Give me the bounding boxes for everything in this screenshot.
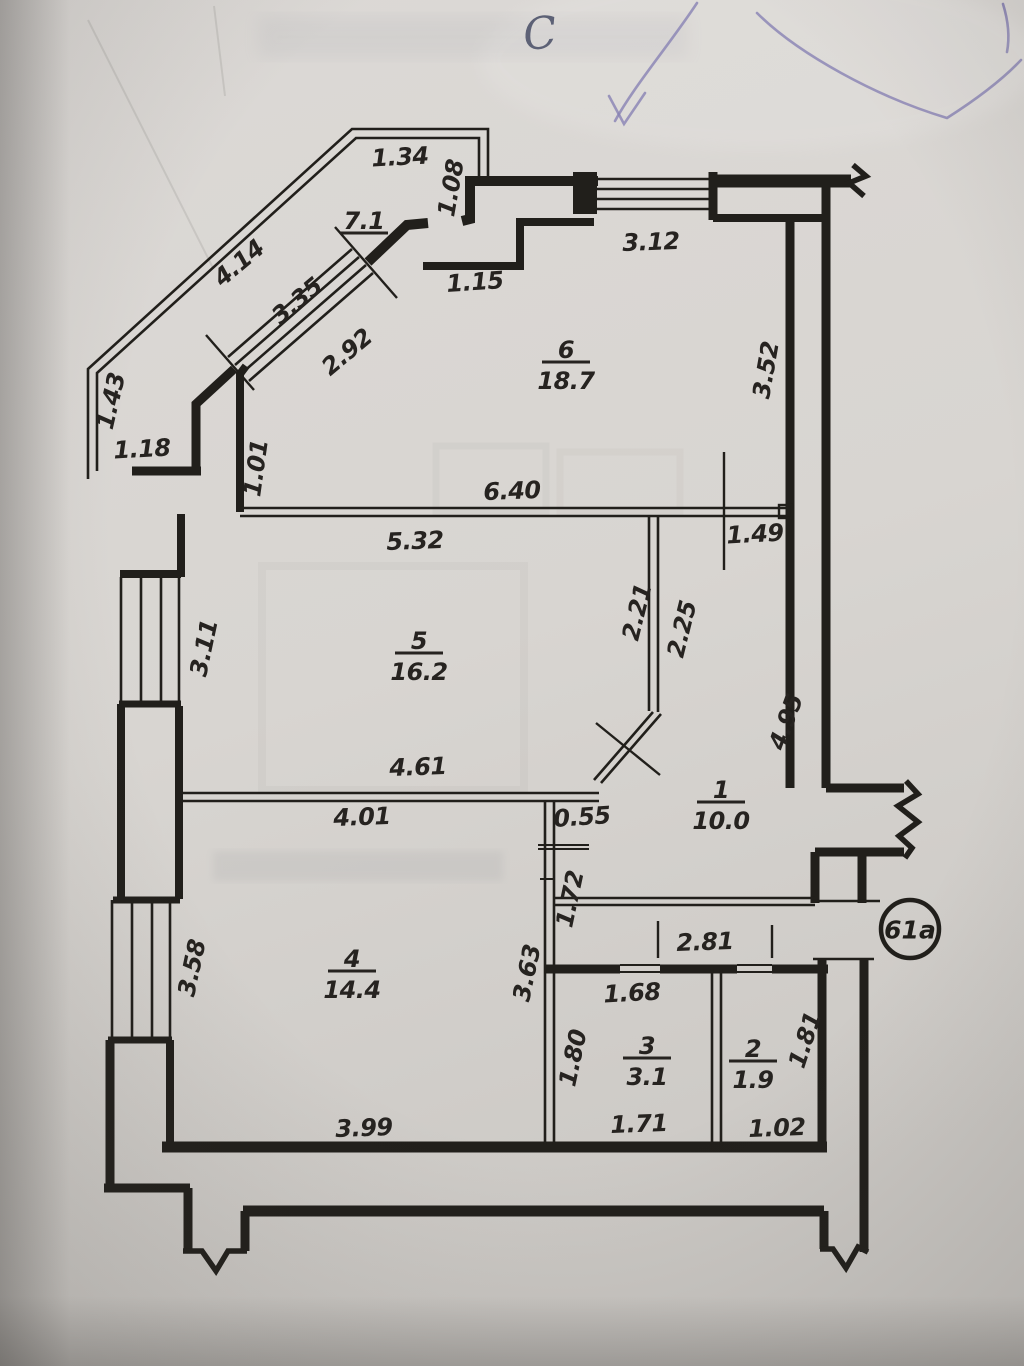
left-edge-shadow bbox=[0, 0, 70, 1366]
vignette-overlay bbox=[0, 0, 1024, 1366]
bottom-edge-shadow bbox=[0, 1296, 1024, 1366]
scanned-floor-plan-photo: 61a C 1.341.084.143.352.921.151.431.181.… bbox=[0, 0, 1024, 1366]
floor-plan-svg: 61a C 1.341.084.143.352.921.151.431.181.… bbox=[0, 0, 1024, 1366]
